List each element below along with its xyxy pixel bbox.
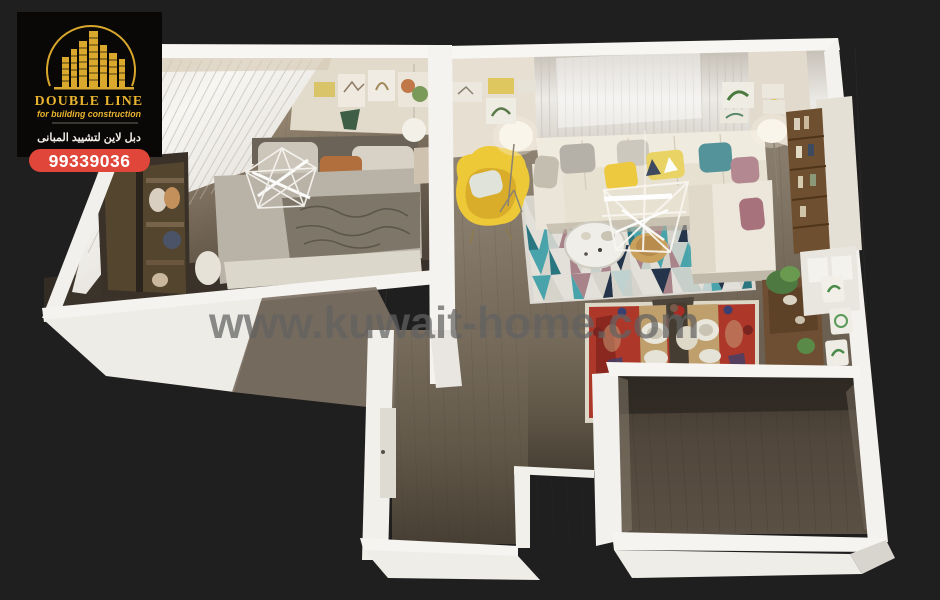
svg-text:DOUBLE LINE: DOUBLE LINE xyxy=(35,93,144,108)
svg-text:دبل لاين لتشييد المبانى: دبل لاين لتشييد المبانى xyxy=(37,132,141,144)
svg-text:www.kuwait-home.com: www.kuwait-home.com xyxy=(208,299,699,348)
svg-text:for building construction: for building construction xyxy=(37,109,141,119)
svg-text:99339036: 99339036 xyxy=(49,151,131,171)
